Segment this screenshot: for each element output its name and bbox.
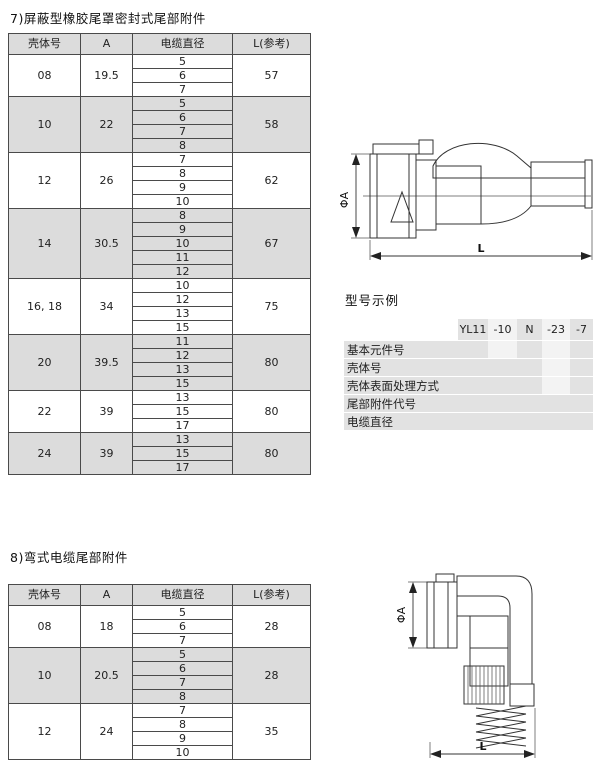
cell-a-dim: 18	[81, 606, 133, 648]
cell-a-dim: 24	[81, 704, 133, 760]
dia-dimension-label: ΦA	[338, 191, 351, 208]
model-code-label: 基本元件号	[344, 341, 458, 358]
cell-cable-diameter: 5	[133, 55, 233, 69]
cell-a-dim: 39.5	[81, 335, 133, 391]
column-header: 壳体号	[9, 585, 81, 606]
cell-l-ref: 58	[233, 97, 311, 153]
table-row: 1224735	[9, 704, 311, 718]
table-row: 2039.51180	[9, 335, 311, 349]
cell-cable-diameter: 7	[133, 83, 233, 97]
column-header: L(参考)	[233, 34, 311, 55]
stair-cell	[458, 377, 488, 394]
stair-cell	[458, 341, 488, 358]
cell-l-ref: 80	[233, 433, 311, 475]
stair-cell	[517, 377, 542, 394]
dia-dimension-label: ΦA	[395, 606, 408, 623]
column-header: L(参考)	[233, 585, 311, 606]
stair-cell	[488, 359, 517, 376]
top-cap-hatch	[436, 574, 454, 582]
length-dimension-label: L	[477, 242, 484, 255]
cell-a-dim: 34	[81, 279, 133, 335]
stair-cell	[570, 413, 593, 430]
table-header-row: 壳体号A电缆直径L(参考)	[9, 34, 311, 55]
cell-cable-diameter: 10	[133, 237, 233, 251]
cell-cable-diameter: 5	[133, 648, 233, 662]
body-mid	[436, 166, 481, 224]
knurl-lines	[468, 666, 500, 704]
table-row: 0818528	[9, 606, 311, 620]
stair-cell	[488, 377, 517, 394]
column-header: 壳体号	[9, 34, 81, 55]
cable-end	[585, 160, 592, 208]
cell-cable-diameter: 9	[133, 732, 233, 746]
model-code-segment: N	[517, 319, 542, 340]
stair-cell	[517, 413, 542, 430]
table-row: 1226762	[9, 153, 311, 167]
model-code-diagram: YL11-10N-23-7基本元件号壳体号壳体表面处理方式尾部附件代号电缆直径	[344, 319, 593, 430]
cell-cable-diameter: 13	[133, 433, 233, 447]
cell-cable-diameter: 10	[133, 195, 233, 209]
cell-cable-diameter: 13	[133, 307, 233, 321]
cell-a-dim: 30.5	[81, 209, 133, 279]
stair-cell	[458, 395, 488, 412]
section7-spec-table: 壳体号A电缆直径L(参考) 0819.555767102255867812267…	[8, 33, 311, 475]
cell-l-ref: 35	[233, 704, 311, 760]
stair-cell	[542, 377, 570, 394]
cell-cable-diameter: 6	[133, 662, 233, 676]
table-row: 16, 18341075	[9, 279, 311, 293]
cell-cable-diameter: 7	[133, 634, 233, 648]
cell-cable-diameter: 7	[133, 125, 233, 139]
cell-cable-diameter: 15	[133, 405, 233, 419]
table-row: 0819.5557	[9, 55, 311, 69]
cell-cable-diameter: 8	[133, 209, 233, 223]
cell-cable-diameter: 10	[133, 279, 233, 293]
cell-l-ref: 80	[233, 335, 311, 391]
cell-cable-diameter: 8	[133, 690, 233, 704]
cell-l-ref: 62	[233, 153, 311, 209]
cell-cable-diameter: 9	[133, 181, 233, 195]
table-header: 壳体号A电缆直径L(参考)	[9, 585, 311, 606]
cell-cable-diameter: 8	[133, 718, 233, 732]
stair-cell	[542, 395, 570, 412]
cell-a-dim: 22	[81, 97, 133, 153]
stair-cell	[488, 413, 517, 430]
cell-cable-diameter: 15	[133, 321, 233, 335]
column-header: 电缆直径	[133, 585, 233, 606]
table-header: 壳体号A电缆直径L(参考)	[9, 34, 311, 55]
stair-cell	[542, 341, 570, 358]
table-header-row: 壳体号A电缆直径L(参考)	[9, 585, 311, 606]
straight-connector-drawing: ΦA L	[333, 120, 598, 268]
cell-cable-diameter: 13	[133, 363, 233, 377]
model-code-segment: -7	[570, 319, 593, 340]
cell-cable-diameter: 12	[133, 293, 233, 307]
cell-cable-diameter: 6	[133, 69, 233, 83]
model-code-label: 尾部附件代号	[344, 395, 458, 412]
stair-cell	[517, 341, 542, 358]
elbow-connector-drawing: ΦA L	[390, 566, 590, 766]
gland-block-hatch	[419, 140, 433, 154]
cell-cable-diameter: 11	[133, 335, 233, 349]
cell-l-ref: 28	[233, 606, 311, 648]
section8-title: 8)弯式电缆尾部附件	[10, 547, 128, 566]
cell-cable-diameter: 15	[133, 447, 233, 461]
code-row-spacer	[344, 319, 458, 340]
cell-shell-no: 08	[9, 606, 81, 648]
cell-cable-diameter: 6	[133, 620, 233, 634]
cell-cable-diameter: 15	[133, 377, 233, 391]
cell-cable-diameter: 17	[133, 419, 233, 433]
cone-detail	[391, 192, 413, 222]
stair-cell	[570, 359, 593, 376]
cell-cable-diameter: 10	[133, 746, 233, 760]
cell-shell-no: 10	[9, 97, 81, 153]
cell-cable-diameter: 7	[133, 704, 233, 718]
cell-l-ref: 28	[233, 648, 311, 704]
cell-cable-diameter: 12	[133, 349, 233, 363]
cell-l-ref: 67	[233, 209, 311, 279]
cell-shell-no: 20	[9, 335, 81, 391]
column-header: A	[81, 34, 133, 55]
cell-shell-no: 22	[9, 391, 81, 433]
body-taper	[481, 206, 531, 224]
cell-cable-diameter: 11	[133, 251, 233, 265]
table-row: 1020.5528	[9, 648, 311, 662]
cell-l-ref: 80	[233, 391, 311, 433]
model-code-label: 壳体号	[344, 359, 458, 376]
cell-a-dim: 39	[81, 391, 133, 433]
cable-braid	[531, 162, 585, 178]
stair-cell	[570, 395, 593, 412]
cell-cable-diameter: 12	[133, 265, 233, 279]
cell-l-ref: 57	[233, 55, 311, 97]
cable-body	[531, 178, 585, 206]
stair-cell	[488, 341, 517, 358]
stair-cell	[458, 359, 488, 376]
cell-cable-diameter: 9	[133, 223, 233, 237]
cell-shell-no: 16, 18	[9, 279, 81, 335]
cell-shell-no: 12	[9, 153, 81, 209]
cell-shell-no: 24	[9, 433, 81, 475]
model-code-label: 电缆直径	[344, 413, 458, 430]
cell-cable-diameter: 5	[133, 606, 233, 620]
cell-l-ref: 75	[233, 279, 311, 335]
section8-spec-table: 壳体号A电缆直径L(参考) 0818528671020.552867812247…	[8, 584, 311, 760]
gland-cap-hatch	[373, 144, 419, 154]
stair-cell	[517, 359, 542, 376]
stair-cell	[517, 395, 542, 412]
side-block-hatch	[510, 684, 534, 706]
model-code-label: 壳体表面处理方式	[344, 377, 458, 394]
cell-cable-diameter: 7	[133, 676, 233, 690]
table-row: 1022558	[9, 97, 311, 111]
cell-shell-no: 14	[9, 209, 81, 279]
stair-cell	[542, 413, 570, 430]
model-example-title: 型号示例	[345, 290, 399, 309]
cell-cable-diameter: 17	[133, 461, 233, 475]
cell-cable-diameter: 6	[133, 111, 233, 125]
cell-cable-diameter: 13	[133, 391, 233, 405]
length-dimension-label: L	[479, 740, 486, 753]
cell-a-dim: 39	[81, 433, 133, 475]
stair-cell	[570, 377, 593, 394]
model-code-segment: -10	[488, 319, 517, 340]
stair-cell	[570, 341, 593, 358]
coupling-nut	[427, 582, 457, 648]
column-header: 电缆直径	[133, 34, 233, 55]
braid-dome-hatch	[433, 143, 531, 178]
cell-a-dim: 20.5	[81, 648, 133, 704]
model-code-segment: YL11	[458, 319, 488, 340]
section7-title: 7)屏蔽型橡胶尾罩密封式尾部附件	[10, 8, 206, 27]
stair-cell	[542, 359, 570, 376]
cell-shell-no: 08	[9, 55, 81, 97]
table-row: 22391380	[9, 391, 311, 405]
cell-shell-no: 12	[9, 704, 81, 760]
stair-cell	[488, 395, 517, 412]
cell-a-dim: 26	[81, 153, 133, 209]
model-code-segment: -23	[542, 319, 570, 340]
cell-cable-diameter: 8	[133, 139, 233, 153]
table-row: 1430.5867	[9, 209, 311, 223]
stair-cell	[458, 413, 488, 430]
column-header: A	[81, 585, 133, 606]
table-row: 24391380	[9, 433, 311, 447]
cell-cable-diameter: 8	[133, 167, 233, 181]
cell-shell-no: 10	[9, 648, 81, 704]
cell-cable-diameter: 5	[133, 97, 233, 111]
cell-cable-diameter: 7	[133, 153, 233, 167]
cell-a-dim: 19.5	[81, 55, 133, 97]
